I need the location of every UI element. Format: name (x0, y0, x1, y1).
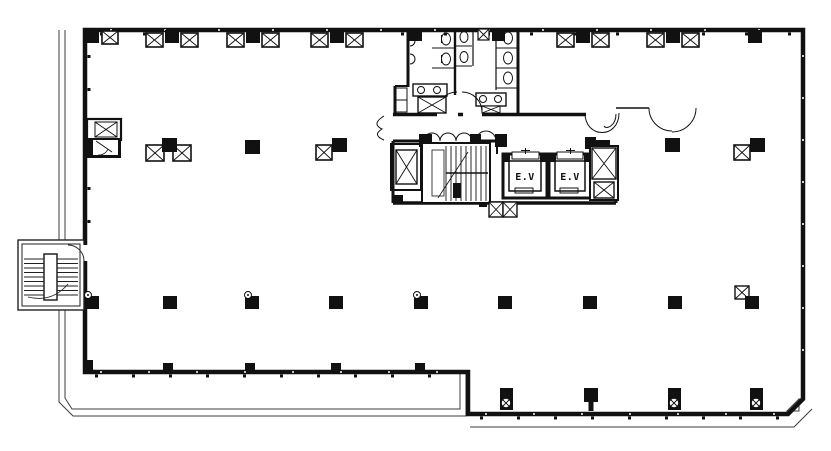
corner-duct-box (102, 31, 118, 44)
duct-xbox (227, 33, 244, 47)
column (163, 296, 177, 309)
annex-shaft (418, 97, 446, 113)
core-right-shaft-lower (594, 182, 614, 198)
below-core-shaft (503, 202, 517, 217)
duct-xbox (102, 31, 118, 44)
floor-plan: E.V E.V (0, 0, 831, 451)
column (745, 296, 759, 309)
column (332, 138, 347, 152)
duct-xbox (734, 145, 750, 160)
duct-xbox (647, 33, 664, 47)
duct-xbox (557, 33, 574, 47)
duct-xbox (181, 33, 198, 47)
elevator-1-label: E.V (515, 172, 535, 183)
column (576, 30, 590, 43)
column (668, 296, 682, 309)
duct-xbox (146, 33, 163, 47)
duct-xbox (682, 33, 699, 47)
column (330, 30, 344, 43)
elevators: E.V E.V (503, 148, 591, 198)
toilet-fixtures (396, 32, 518, 113)
column (750, 138, 765, 152)
columns (83, 30, 765, 411)
duct-xbox (316, 145, 332, 160)
wall-column-stub (83, 363, 93, 371)
left-wall-closet (87, 119, 121, 158)
below-core-shaft (489, 202, 503, 217)
column (245, 140, 260, 154)
floor-plan-drawing: E.V E.V (0, 0, 831, 451)
wall-column-stub (163, 363, 173, 371)
toilet-shaft (478, 29, 489, 40)
exterior-walls (83, 30, 803, 418)
elevator-2-label: E.V (560, 172, 580, 183)
duct-xbox (346, 33, 363, 47)
column (165, 30, 179, 43)
column (583, 296, 597, 309)
column (246, 30, 260, 43)
column (748, 30, 762, 43)
duct-xbox (146, 145, 164, 161)
column (162, 138, 177, 152)
column (666, 30, 680, 43)
wall-column-stub (245, 363, 255, 371)
column (584, 388, 598, 402)
core-left-shaft (396, 150, 417, 184)
wall-column-stub (331, 363, 341, 371)
duct-xbox (592, 33, 609, 47)
column (329, 296, 343, 309)
core-stair (422, 143, 490, 203)
column (665, 138, 680, 152)
core-right-shaft-upper (592, 148, 616, 179)
duct-xbox (262, 33, 279, 47)
external-stair (18, 240, 88, 310)
column (498, 296, 512, 309)
duct-xbox (311, 33, 328, 47)
wall-column-stub (415, 363, 425, 371)
